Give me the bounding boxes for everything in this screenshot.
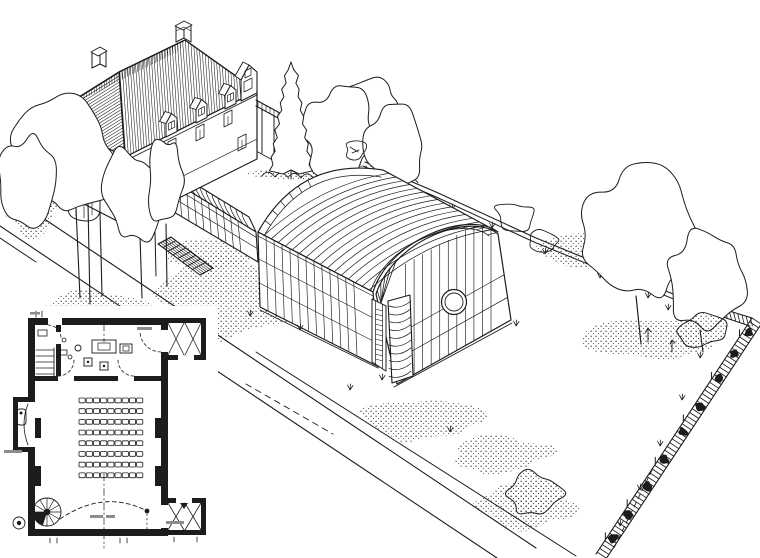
rect <box>161 318 168 330</box>
plan-caption-smudge-left-wall-caption <box>4 450 22 453</box>
fence-foliage <box>715 374 724 383</box>
corner-pier <box>388 295 413 383</box>
plan-caption-smudge-footer-caption <box>90 515 103 518</box>
circle <box>87 361 89 363</box>
fence-hatch <box>737 341 746 347</box>
plan-caption-smudge-entry-caption <box>30 312 40 315</box>
circle <box>44 509 50 515</box>
walk-edge <box>0 238 36 262</box>
dashed-guide <box>614 470 652 548</box>
grass-tuft <box>666 304 672 310</box>
fence-foliage <box>696 403 706 412</box>
circle <box>20 412 23 415</box>
fence-hatch <box>746 317 748 325</box>
rect <box>62 318 168 325</box>
fence-hatch <box>652 469 661 475</box>
rect <box>74 376 118 381</box>
rect <box>35 376 58 381</box>
fence-hatch <box>700 397 709 403</box>
fence-edge <box>605 324 760 558</box>
fence-hatch <box>740 337 749 343</box>
circle <box>17 521 21 525</box>
rect <box>168 318 206 323</box>
tree-trunk <box>100 212 102 296</box>
fence-hatch <box>752 318 760 324</box>
tree-trunk <box>88 203 90 304</box>
fence-hatch <box>734 313 736 321</box>
rect <box>168 498 176 503</box>
fence-hatch <box>655 465 664 471</box>
grass-tuft <box>698 352 704 358</box>
tree-trunk <box>166 224 167 286</box>
grass-tuft <box>658 440 664 446</box>
fence-hatch <box>738 314 740 322</box>
walk-dashed-edge <box>246 384 333 434</box>
fence-hatch <box>690 412 699 418</box>
fence-hatch <box>742 315 744 323</box>
fence-hatch <box>702 394 711 400</box>
fence-hatch <box>632 499 641 505</box>
grass-tuft <box>680 394 686 400</box>
fence-hatch <box>720 367 729 373</box>
tree-trunk <box>76 208 80 298</box>
fence-hatch <box>650 473 659 479</box>
rect <box>28 529 168 536</box>
architectural-drawing-page <box>0 0 760 558</box>
axonometric-site-drawing <box>0 0 760 558</box>
fence-hatch <box>597 552 606 558</box>
fence-hatch <box>685 420 694 426</box>
rect <box>194 355 206 360</box>
rect <box>134 376 161 381</box>
fence-hatch <box>600 548 609 554</box>
fence-hatch <box>725 360 734 366</box>
fence-hatch <box>707 386 716 392</box>
fence-hatch <box>750 322 759 328</box>
post <box>155 232 156 276</box>
fence-hatch <box>667 446 676 452</box>
rect <box>28 447 35 536</box>
fence-hatch <box>602 545 611 551</box>
fence-foliage <box>730 349 739 357</box>
spiral-stair-icon <box>33 498 61 526</box>
fence-hatch <box>672 439 681 445</box>
rect <box>155 418 161 438</box>
shrub-bed <box>360 400 488 442</box>
grass-tuft <box>380 374 386 380</box>
rect <box>35 418 41 438</box>
fence-hatch <box>722 363 731 369</box>
tree-trunk <box>140 236 142 298</box>
rect <box>13 397 18 452</box>
fence-hatch <box>687 416 696 422</box>
fence-foliage <box>659 455 669 464</box>
rect <box>168 530 206 535</box>
plan-caption-smudge-footer-caption <box>106 515 115 518</box>
rect <box>201 498 206 535</box>
rect <box>28 318 35 402</box>
shrub-bed <box>454 434 557 475</box>
fence-hatch <box>675 435 684 441</box>
rect <box>168 355 178 360</box>
rect <box>35 466 41 486</box>
fence-hatch <box>705 390 714 396</box>
arc-end-dot <box>145 509 150 514</box>
floor-plan-inset <box>4 306 218 554</box>
rect <box>161 352 168 505</box>
grass-tuft <box>348 384 354 390</box>
plan-caption-smudge-vestibule-caption <box>166 521 184 524</box>
rect <box>201 318 206 360</box>
circle <box>103 365 105 367</box>
greenhouse-hall <box>248 168 520 387</box>
fence-hatch <box>710 382 719 388</box>
grass-tuft <box>514 320 520 326</box>
wall-shrub <box>495 204 535 231</box>
rect <box>155 466 161 486</box>
fence-hatch <box>670 443 679 449</box>
plan-caption-smudge-stage-caption <box>137 327 152 330</box>
rect <box>56 344 61 376</box>
